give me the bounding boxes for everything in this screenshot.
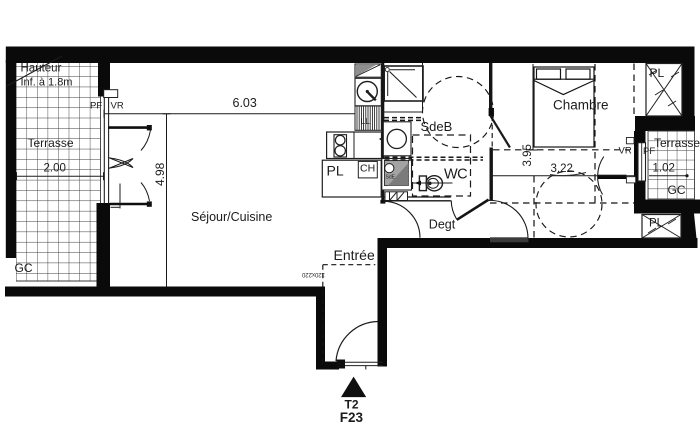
- svg-text:120x220: 120x220: [301, 271, 325, 277]
- svg-text:GC: GC: [668, 183, 686, 197]
- svg-text:PL: PL: [327, 163, 344, 179]
- svg-text:Terrasse: Terrasse: [654, 136, 700, 150]
- svg-text:F23: F23: [340, 410, 364, 425]
- svg-text:2.00: 2.00: [44, 163, 66, 175]
- svg-text:3,22: 3,22: [551, 163, 573, 175]
- svg-text:SdE: SdE: [386, 175, 396, 181]
- svg-text:Terrasse: Terrasse: [28, 136, 74, 150]
- svg-text:4.98: 4.98: [153, 162, 167, 186]
- svg-text:PL: PL: [650, 66, 665, 80]
- svg-text:SdeB: SdeB: [421, 119, 453, 134]
- svg-text:LL: LL: [361, 116, 371, 126]
- svg-text:6.03: 6.03: [233, 96, 257, 110]
- svg-text:Degt: Degt: [429, 218, 456, 232]
- svg-text:3.95: 3.95: [522, 144, 534, 166]
- svg-text:Hauteur: Hauteur: [21, 63, 62, 75]
- svg-text:1.02: 1.02: [653, 163, 675, 175]
- svg-text:GC: GC: [15, 261, 33, 275]
- svg-text:Entrée: Entrée: [334, 247, 375, 263]
- svg-text:Chambre: Chambre: [553, 98, 609, 113]
- svg-text:VR: VR: [111, 101, 124, 112]
- svg-text:Inf. à 1.8m: Inf. à 1.8m: [21, 77, 73, 89]
- svg-text:WC: WC: [444, 167, 467, 183]
- svg-text:PL: PL: [649, 218, 664, 230]
- svg-text:VR: VR: [619, 146, 632, 157]
- svg-text:PF: PF: [90, 101, 102, 112]
- svg-text:Séjour/Cuisine: Séjour/Cuisine: [191, 210, 272, 224]
- svg-text:CH: CH: [360, 163, 375, 175]
